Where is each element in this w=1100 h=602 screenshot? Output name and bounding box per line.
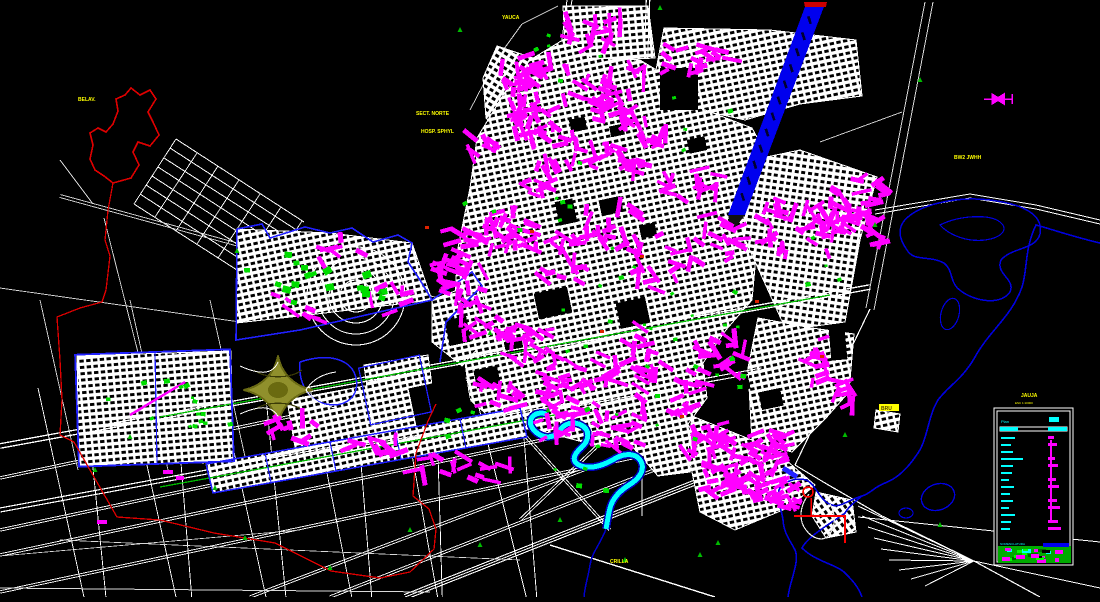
svg-text:SECT. NORTE: SECT. NORTE [416,111,450,117]
svg-text:YAUCA: YAUCA [502,15,520,21]
svg-text:CRILLA: CRILLA [610,559,629,565]
svg-text:ESC 1:10000: ESC 1:10000 [1015,401,1033,405]
svg-text:Plan: Plan [1001,419,1009,424]
svg-text:BRU: BRU [881,406,892,412]
svg-text:JAUJA: JAUJA [1021,393,1038,399]
svg-text:HOSP. SPHYL: HOSP. SPHYL [421,129,454,135]
svg-text:BW2 JWHH: BW2 JWHH [954,155,982,161]
svg-text:NOMENCLATURA: NOMENCLATURA [1000,542,1025,546]
svg-text:BELAV.: BELAV. [78,97,96,103]
